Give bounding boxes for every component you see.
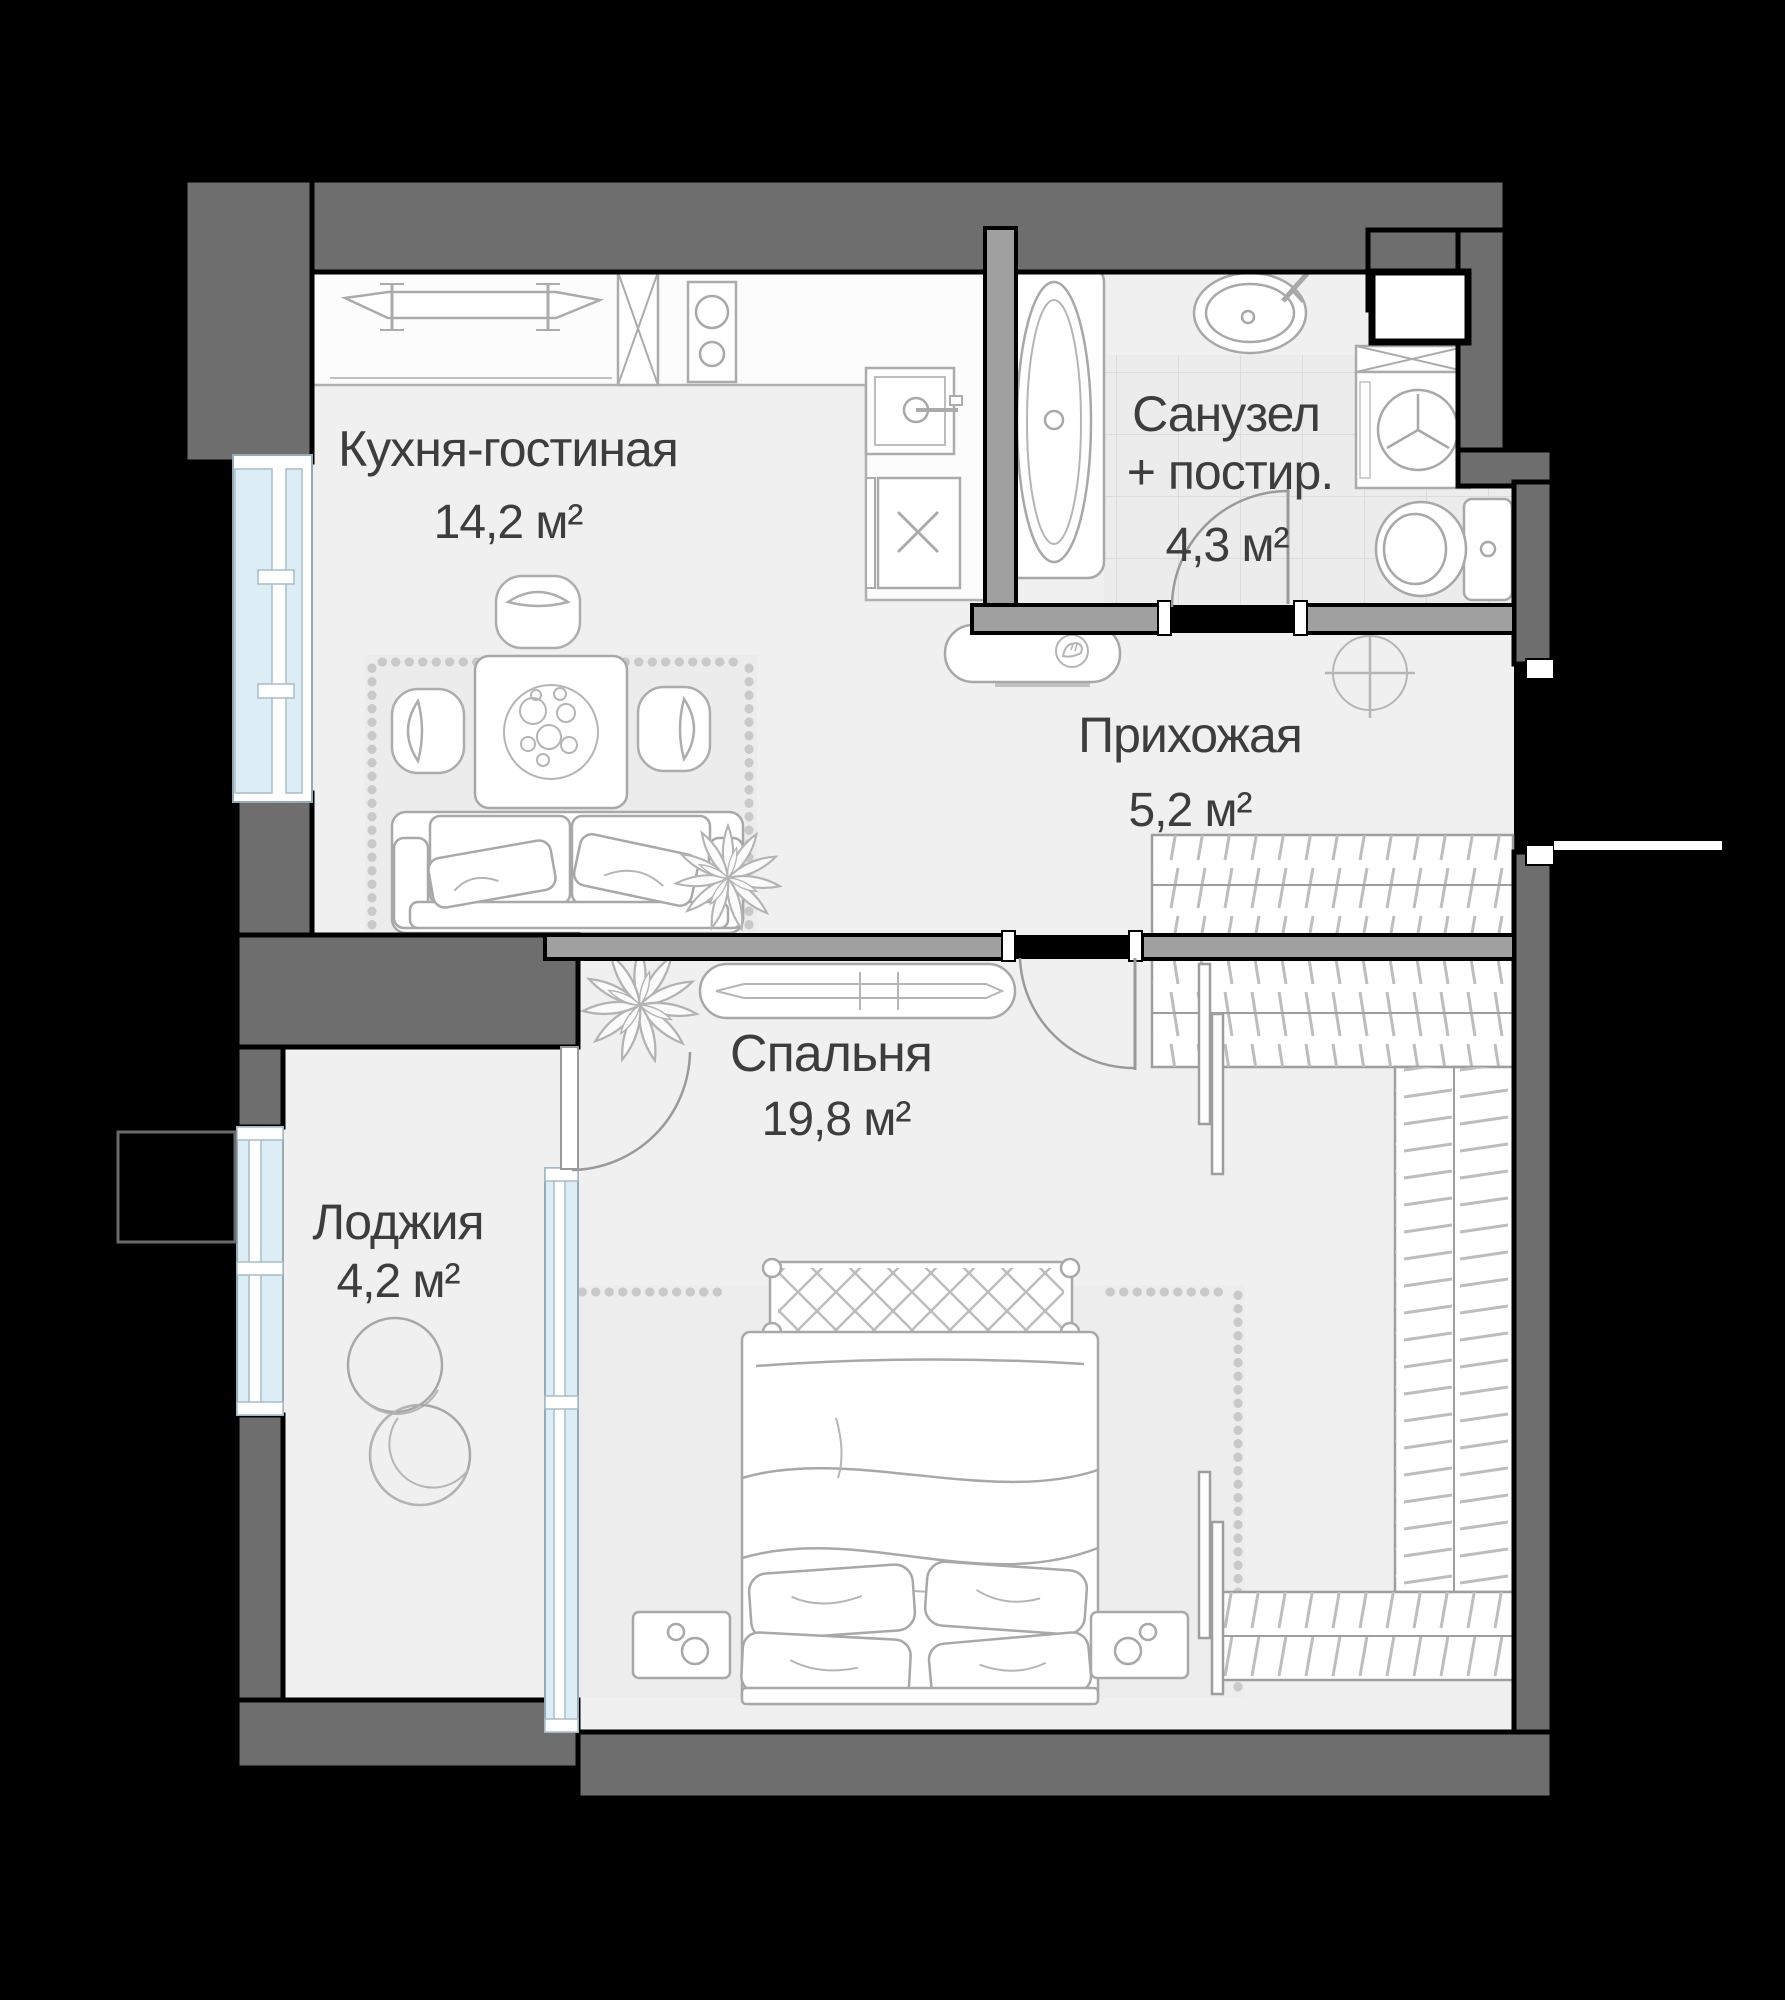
wall-bedroom-partition-right bbox=[1142, 935, 1514, 959]
sofa bbox=[392, 812, 743, 933]
bed-foot-bench bbox=[763, 1259, 1079, 1341]
entry-door-leaf bbox=[1554, 841, 1722, 850]
dishwasher-icon bbox=[866, 478, 960, 588]
label-bedroom-name: Спальня bbox=[730, 1025, 932, 1083]
kitchen-cabinet-x bbox=[618, 272, 658, 385]
label-kitchen-living-name: Кухня-гостиная bbox=[338, 421, 678, 477]
chair-right bbox=[638, 687, 710, 771]
kitchen-sink-icon bbox=[866, 368, 962, 454]
wall-loggia-bottom bbox=[237, 1700, 578, 1768]
wall-bathroom-bottom-left bbox=[972, 605, 1164, 633]
toilet-icon bbox=[1376, 499, 1512, 600]
stove-icon bbox=[688, 282, 736, 382]
wall-loggia-top bbox=[237, 935, 578, 1047]
nightstand-right bbox=[1091, 1612, 1188, 1678]
hallway-wardrobe bbox=[1152, 835, 1513, 935]
floor-plan: Кухня-гостиная 14,2 м² Санузел + постир.… bbox=[0, 0, 1785, 2000]
wall-right-below-door bbox=[1514, 852, 1552, 1798]
chair-left bbox=[392, 689, 464, 773]
label-bathroom-area: 4,3 м² bbox=[1165, 519, 1289, 572]
label-bathroom-name-2: + постир. bbox=[1127, 444, 1334, 500]
wall-kitchen-bathroom bbox=[985, 228, 1016, 609]
entry-door bbox=[1526, 659, 1722, 865]
wall-left-top bbox=[185, 180, 312, 462]
wall-bedroom-partition-left bbox=[545, 935, 1004, 959]
dining-table bbox=[475, 656, 627, 808]
wall-loggia-left-lower bbox=[237, 1415, 283, 1705]
label-kitchen-living-area: 14,2 м² bbox=[434, 496, 584, 549]
exterior-ledge bbox=[118, 1132, 235, 1242]
loggia-window-left bbox=[237, 1127, 283, 1415]
wall-left-mid bbox=[237, 793, 312, 940]
wall-bathroom-bottom-right bbox=[1296, 605, 1514, 633]
kitchen-window bbox=[233, 455, 312, 802]
label-bedroom-area: 19,8 м² bbox=[762, 1093, 912, 1146]
floor-plan-canvas: Кухня-гостиная 14,2 м² Санузел + постир.… bbox=[0, 0, 1785, 2000]
bed bbox=[741, 1259, 1098, 1705]
loggia-window-bedroom bbox=[545, 1168, 578, 1732]
bedroom-wardrobe-bottom bbox=[1215, 1592, 1513, 1680]
wall-loggia-left-upper bbox=[237, 1047, 283, 1127]
bedroom-console bbox=[700, 964, 1015, 1018]
label-bathroom-name-1: Санузел bbox=[1132, 386, 1320, 442]
label-hallway-name: Прихожая bbox=[1078, 707, 1302, 763]
nightstand-left bbox=[633, 1612, 730, 1678]
bed-headboard bbox=[742, 1688, 1098, 1704]
duct-shaft bbox=[1372, 272, 1468, 342]
floor-loggia bbox=[283, 1047, 545, 1702]
wall-top bbox=[185, 180, 1505, 272]
bedroom-wardrobe-right bbox=[1395, 1067, 1513, 1592]
label-hallway-area: 5,2 м² bbox=[1128, 784, 1252, 837]
wall-bottom bbox=[578, 1732, 1552, 1798]
wall-right-above-door bbox=[1514, 482, 1552, 664]
label-loggia-area: 4,2 м² bbox=[336, 1255, 460, 1308]
vent-shaft-icon bbox=[1356, 346, 1468, 372]
bathtub-icon bbox=[1004, 266, 1104, 578]
chair-top bbox=[496, 576, 580, 648]
washing-machine-icon bbox=[1356, 372, 1470, 488]
label-loggia-name: Лоджия bbox=[312, 1194, 483, 1250]
